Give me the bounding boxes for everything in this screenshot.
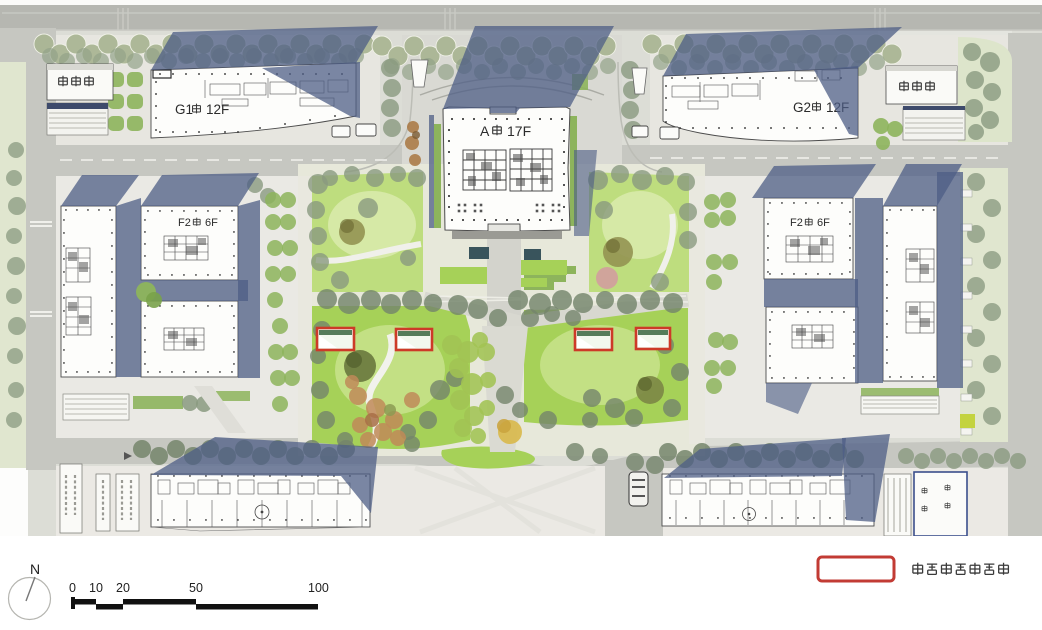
svg-text:6F: 6F [205,217,218,229]
svg-text:10: 10 [89,581,103,595]
svg-text:A: A [480,123,490,139]
svg-text:12F: 12F [206,102,229,117]
svg-text:G2: G2 [793,100,811,115]
svg-text:6F: 6F [817,217,830,229]
svg-text:N: N [30,561,40,577]
svg-text:G1: G1 [175,102,193,117]
svg-text:F2: F2 [178,217,191,229]
svg-text:100: 100 [308,581,329,595]
svg-text:50: 50 [189,581,203,595]
svg-text:0: 0 [69,581,76,595]
svg-text:17F: 17F [507,123,531,139]
svg-text:F2: F2 [790,217,803,229]
svg-text:20: 20 [116,581,130,595]
